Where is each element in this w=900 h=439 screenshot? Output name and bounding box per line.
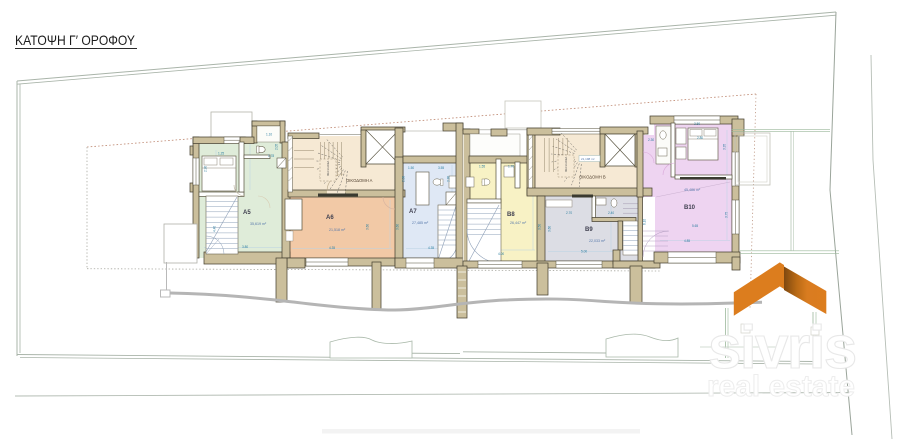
svg-text:4.85: 4.85 — [684, 239, 690, 243]
svg-text:6.10: 6.10 — [643, 219, 647, 225]
svg-text:5.00: 5.00 — [581, 250, 587, 254]
svg-text:45,486 m²: 45,486 m² — [684, 188, 701, 192]
svg-text:ΟΙΚΟΔΟΜΗ Α: ΟΙΚΟΔΟΜΗ Α — [346, 178, 373, 183]
svg-text:21,198 m²: 21,198 m² — [581, 157, 595, 161]
svg-text:1.55: 1.55 — [479, 165, 485, 169]
svg-text:2.05: 2.05 — [275, 144, 279, 150]
svg-text:3.50: 3.50 — [538, 224, 542, 230]
svg-text:ΚΑΤΟΨΗ Γ′ ΟΡΟΦΟΥ: ΚΑΤΟΨΗ Γ′ ΟΡΟΦΟΥ — [15, 32, 136, 48]
svg-text:3.55: 3.55 — [438, 166, 444, 170]
svg-text:21,518 m²: 21,518 m² — [329, 228, 346, 232]
svg-text:MECH AREA: MECH AREA — [564, 156, 568, 172]
svg-text:3.60: 3.60 — [548, 226, 552, 232]
svg-text:4.35: 4.35 — [428, 246, 434, 250]
svg-text:2.80: 2.80 — [697, 136, 703, 140]
svg-text:2.00: 2.00 — [402, 176, 406, 182]
svg-text:4.35: 4.35 — [329, 246, 335, 250]
svg-text:3.35: 3.35 — [723, 144, 727, 150]
svg-text:22,033 m²: 22,033 m² — [589, 239, 606, 243]
svg-text:1.50: 1.50 — [408, 166, 414, 170]
svg-text:real estate: real estate — [707, 370, 855, 403]
svg-text:2.70: 2.70 — [566, 211, 572, 215]
svg-text:1.78: 1.78 — [268, 154, 274, 158]
svg-text:3.60: 3.60 — [366, 224, 370, 230]
svg-text:A6: A6 — [326, 215, 334, 221]
svg-text:4.00: 4.00 — [498, 252, 504, 256]
svg-text:ΟΙΚΟΔΟΜΗ Β: ΟΙΚΟΔΟΜΗ Β — [579, 175, 606, 180]
svg-text:26,447 m²: 26,447 m² — [510, 221, 527, 225]
svg-text:3.60: 3.60 — [396, 224, 400, 230]
svg-text:2.90: 2.90 — [204, 166, 208, 172]
svg-text:B8: B8 — [507, 212, 515, 218]
svg-text:2.30: 2.30 — [447, 176, 451, 182]
svg-text:4.40: 4.40 — [213, 226, 217, 232]
svg-text:2.40: 2.40 — [608, 211, 614, 215]
svg-text:A7: A7 — [409, 209, 417, 215]
svg-text:27,485 m²: 27,485 m² — [412, 221, 429, 225]
svg-text:35,619 m²: 35,619 m² — [250, 222, 267, 226]
svg-text:B10: B10 — [684, 205, 696, 211]
svg-text:A5: A5 — [243, 210, 251, 216]
svg-text:1.10: 1.10 — [266, 133, 272, 137]
svg-text:3.80: 3.80 — [242, 245, 248, 249]
svg-text:3.75: 3.75 — [725, 212, 729, 218]
svg-text:MECH AREA: MECH AREA — [326, 160, 330, 176]
svg-text:3.50: 3.50 — [694, 122, 700, 126]
svg-text:1.25: 1.25 — [218, 152, 224, 156]
svg-text:1.70: 1.70 — [508, 165, 514, 169]
svg-text:2.30: 2.30 — [648, 138, 654, 142]
svg-text:5.65: 5.65 — [692, 224, 698, 228]
svg-text:B9: B9 — [585, 227, 593, 233]
